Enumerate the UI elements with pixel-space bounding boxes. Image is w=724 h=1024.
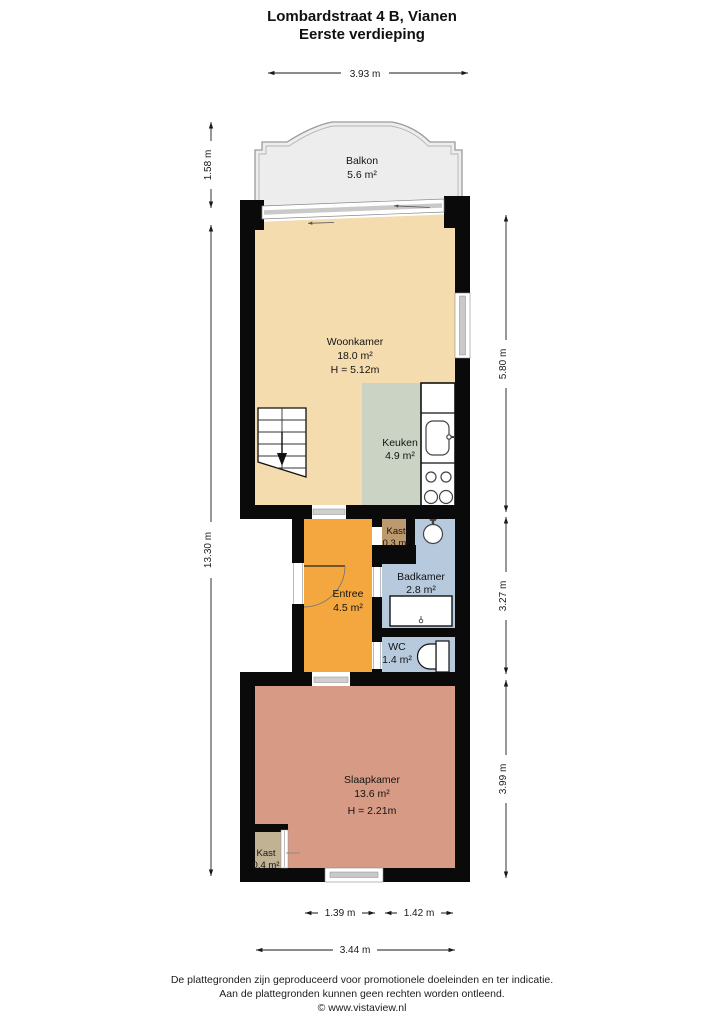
shower-icon bbox=[390, 596, 452, 626]
dim-right-upper-label: 5.80 m bbox=[498, 349, 509, 380]
floorplan-page: Lombardstraat 4 B, Vianen Eerste verdiep… bbox=[0, 0, 724, 1024]
label-kast-boven-area: 0.3 m² bbox=[383, 538, 410, 549]
dim-bottom-total-label: 3.44 m bbox=[340, 945, 371, 956]
woonkamer-window-glass bbox=[460, 296, 466, 355]
floorplan-svg: Lombardstraat 4 B, Vianen Eerste verdiep… bbox=[0, 0, 724, 1024]
dim-right-middle-label: 3.27 m bbox=[498, 581, 509, 612]
label-keuken-name: Keuken bbox=[382, 437, 418, 449]
label-woonkamer-area: 18.0 m² bbox=[337, 350, 373, 362]
dim-bottom-right-label: 1.42 m bbox=[404, 908, 435, 919]
label-kast-onder-name: Kast bbox=[256, 848, 275, 859]
label-kast-onder-area: 0.4 m² bbox=[253, 860, 280, 871]
slaapkamer-window-glass bbox=[330, 872, 378, 878]
dim-balkon-depth-label: 1.58 m bbox=[203, 150, 214, 181]
label-entree-name: Entree bbox=[333, 588, 364, 600]
label-balkon-name: Balkon bbox=[346, 155, 378, 167]
door-woonkamer-entree-sill bbox=[313, 509, 345, 515]
label-keuken-area: 4.9 m² bbox=[385, 450, 415, 462]
label-slaapkamer-area: 13.6 m² bbox=[354, 788, 390, 800]
label-wc-area: 1.4 m² bbox=[382, 654, 412, 666]
footer-line2: Aan de plattegronden kunnen geen rechten… bbox=[219, 988, 504, 1000]
label-badkamer-name: Badkamer bbox=[397, 571, 445, 583]
door-entree-slaapkamer-sill bbox=[314, 677, 348, 683]
label-slaapkamer-ceiling: H = 2.21m bbox=[348, 805, 397, 817]
label-badkamer-area: 2.8 m² bbox=[406, 584, 436, 596]
footer-line3: © www.vistaview.nl bbox=[318, 1002, 407, 1014]
footer-line1: De plattegronden zijn geproduceerd voor … bbox=[171, 974, 553, 986]
label-woonkamer-ceiling: H = 5.12m bbox=[331, 364, 380, 376]
dim-bottom-left-label: 1.39 m bbox=[325, 908, 356, 919]
label-kast-boven-name: Kast bbox=[386, 526, 405, 537]
page-title-line2: Eerste verdieping bbox=[299, 26, 425, 43]
label-balkon-area: 5.6 m² bbox=[347, 169, 377, 181]
label-slaapkamer-name: Slaapkamer bbox=[344, 774, 401, 786]
label-woonkamer-name: Woonkamer bbox=[327, 336, 384, 348]
dim-top-label: 3.93 m bbox=[350, 69, 381, 80]
dim-right-lower-label: 3.99 m bbox=[498, 764, 509, 795]
label-entree-area: 4.5 m² bbox=[333, 602, 363, 614]
page-title-line1: Lombardstraat 4 B, Vianen bbox=[267, 8, 457, 25]
dim-total-height-label: 13.30 m bbox=[203, 532, 214, 568]
label-wc-name: WC bbox=[388, 641, 406, 653]
door-kast-boven bbox=[372, 527, 382, 545]
